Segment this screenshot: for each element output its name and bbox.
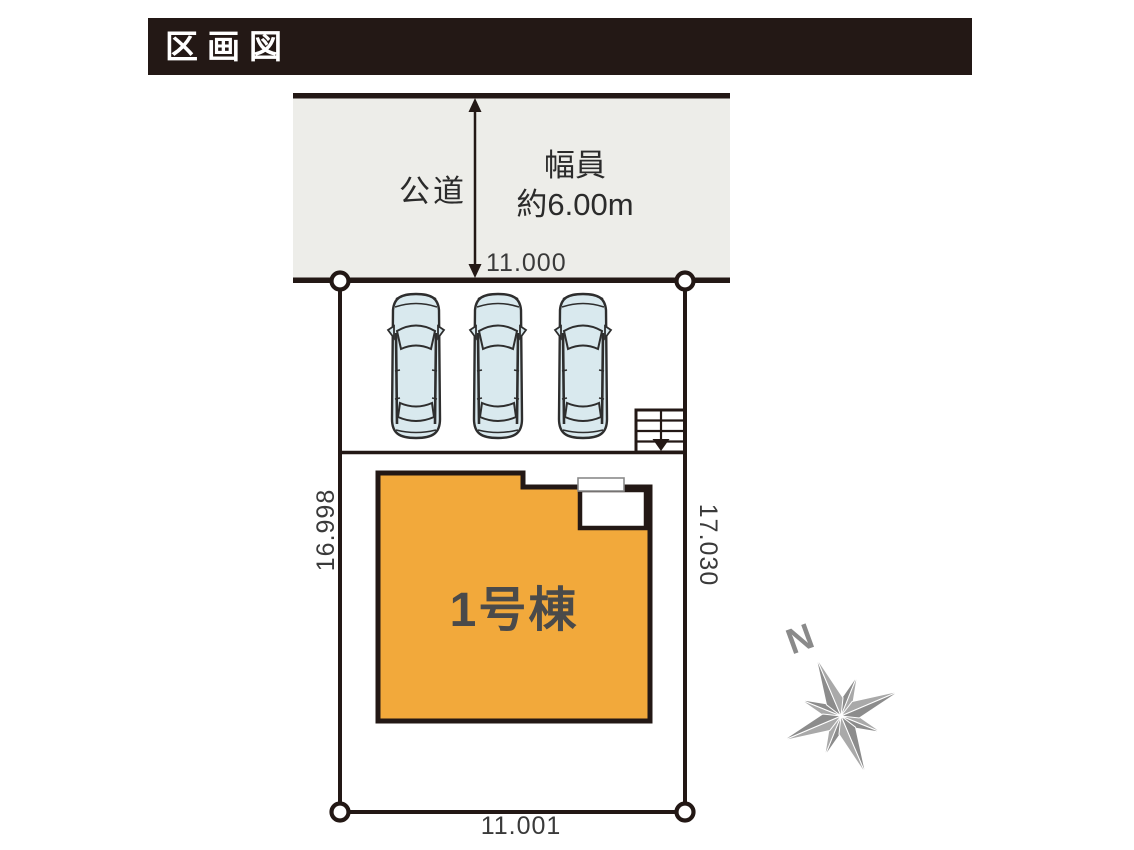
- road-width-line1: 幅員: [495, 146, 655, 185]
- dimension-right: 17.030: [694, 490, 722, 600]
- dimension-left: 16.998: [312, 475, 340, 585]
- corner-marker: [332, 273, 349, 290]
- entrance-porch: [580, 490, 646, 528]
- car-icon: [555, 294, 611, 438]
- road-width-label: 幅員 約6.00m: [495, 146, 655, 224]
- compass-icon: [757, 632, 925, 800]
- dimension-bottom: 11.001: [461, 812, 581, 841]
- plot-map-page: 区画図: [0, 0, 1134, 850]
- road-label: 公道: [399, 166, 467, 211]
- road-bottom-edge: [293, 278, 730, 284]
- porch-step: [578, 478, 624, 491]
- corner-marker: [677, 804, 694, 821]
- dimension-top: 11.000: [486, 249, 567, 278]
- parking-cars: [388, 294, 611, 438]
- building-label: 1号棟: [378, 570, 650, 640]
- plot-diagram: [0, 0, 1134, 850]
- car-icon: [470, 294, 526, 438]
- road-top-edge: [293, 93, 730, 99]
- corner-marker: [677, 273, 694, 290]
- car-icon: [388, 294, 444, 438]
- road-width-line2: 約6.00m: [495, 185, 655, 224]
- stairs-icon: [636, 410, 685, 452]
- corner-marker: [332, 804, 349, 821]
